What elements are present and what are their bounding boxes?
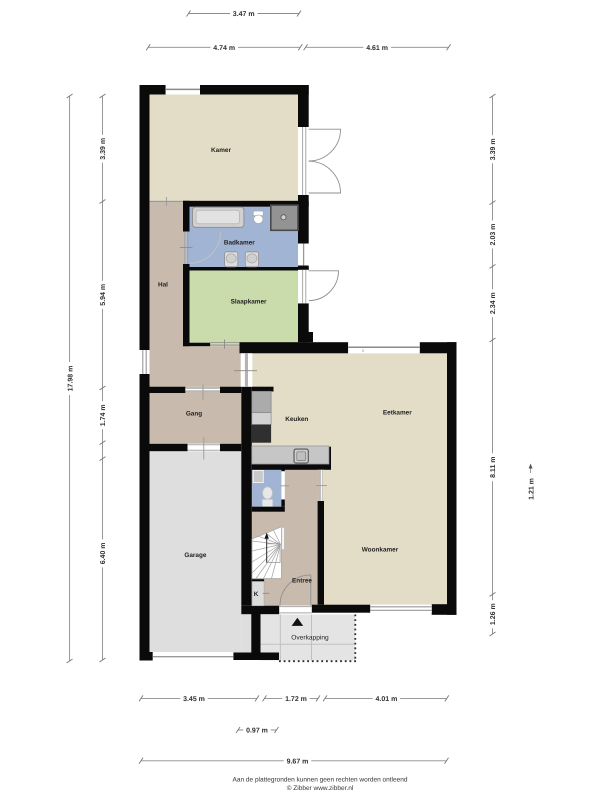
svg-text:2.34 m: 2.34 m bbox=[490, 292, 497, 314]
svg-text:1.21 m: 1.21 m bbox=[528, 478, 535, 500]
svg-text:1.26 m: 1.26 m bbox=[490, 603, 497, 625]
svg-text:0.97 m: 0.97 m bbox=[246, 728, 268, 735]
svg-text:Overkapping: Overkapping bbox=[291, 635, 329, 642]
svg-text:5.94 m: 5.94 m bbox=[100, 284, 107, 306]
svg-text:Entree: Entree bbox=[292, 578, 312, 585]
svg-text:6.40 m: 6.40 m bbox=[100, 543, 107, 565]
svg-text:Aan de plattegronden kunnen ge: Aan de plattegronden kunnen geen rechten… bbox=[233, 776, 408, 783]
svg-text:2.03 m: 2.03 m bbox=[490, 224, 497, 246]
svg-text:Woonkamer: Woonkamer bbox=[362, 547, 399, 554]
svg-text:4.01 m: 4.01 m bbox=[376, 696, 398, 703]
svg-text:Kamer: Kamer bbox=[211, 147, 231, 154]
svg-text:8.11 m: 8.11 m bbox=[490, 456, 497, 477]
svg-text:3.45 m: 3.45 m bbox=[183, 696, 205, 703]
svg-text:Hal: Hal bbox=[158, 282, 168, 289]
svg-text:Keuken: Keuken bbox=[285, 416, 308, 423]
svg-text:17.98 m: 17.98 m bbox=[67, 366, 74, 392]
svg-text:1.74 m: 1.74 m bbox=[100, 404, 107, 426]
svg-text:Eetkamer: Eetkamer bbox=[383, 410, 412, 417]
svg-text:1.72 m: 1.72 m bbox=[285, 696, 307, 703]
svg-text:3.39 m: 3.39 m bbox=[100, 138, 107, 160]
svg-text:K: K bbox=[254, 591, 259, 598]
svg-text:4.61 m: 4.61 m bbox=[366, 45, 388, 52]
svg-text:3.47 m: 3.47 m bbox=[233, 11, 255, 18]
svg-text:Badkamer: Badkamer bbox=[224, 240, 255, 247]
svg-text:3.39 m: 3.39 m bbox=[490, 138, 497, 160]
svg-text:9.67 m: 9.67 m bbox=[287, 759, 309, 766]
svg-text:© Zibber www.zibber.nl: © Zibber www.zibber.nl bbox=[287, 785, 354, 792]
svg-text:Slaapkamer: Slaapkamer bbox=[231, 299, 267, 306]
svg-text:Garage: Garage bbox=[184, 552, 206, 559]
svg-text:4.74 m: 4.74 m bbox=[213, 45, 235, 52]
svg-text:Gang: Gang bbox=[186, 411, 202, 418]
